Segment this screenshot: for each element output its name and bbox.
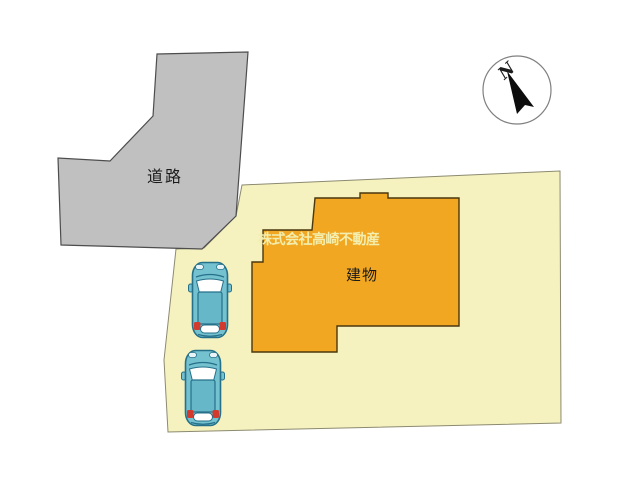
road-area [58, 52, 248, 249]
company-watermark: 株式会社高崎不動産 [258, 229, 380, 249]
site-plan-canvas: N 道路 株式会社高崎不動産 建物 [0, 0, 640, 480]
building-label: 建物 [346, 264, 378, 285]
compass-icon: N [483, 56, 551, 124]
road-label: 道路 [147, 163, 183, 187]
car-icon [189, 263, 232, 338]
car-icon [182, 351, 225, 426]
